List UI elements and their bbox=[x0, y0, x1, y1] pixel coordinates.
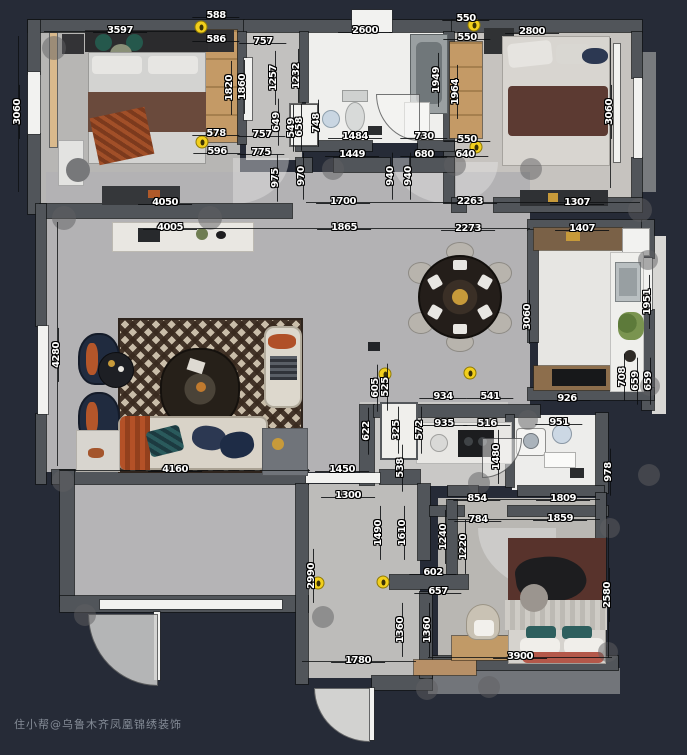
dimension-label: 586 bbox=[206, 35, 225, 45]
island-decor bbox=[196, 228, 208, 240]
bath-mat bbox=[368, 126, 382, 135]
projector bbox=[368, 342, 380, 351]
dimension-label: 4280 bbox=[52, 342, 62, 368]
watermark: 住小帮@乌鲁木齐凤凰锦绣装饰 bbox=[14, 716, 182, 732]
centerpiece bbox=[452, 289, 468, 305]
dimension-label: 1360 bbox=[396, 617, 406, 643]
entry-bench bbox=[414, 660, 476, 675]
wall bbox=[632, 32, 642, 78]
floor-mat-decor bbox=[272, 438, 284, 450]
pouf bbox=[95, 34, 112, 51]
dimension-label: 4005 bbox=[157, 223, 183, 233]
column-blob bbox=[600, 518, 620, 538]
dimension-label: 572 bbox=[415, 420, 425, 439]
dimension-label: 951 bbox=[549, 418, 568, 428]
column-blob bbox=[638, 464, 660, 486]
dimension-label: 1949 bbox=[432, 67, 442, 93]
bed-pillow bbox=[507, 40, 553, 68]
bed-pillow bbox=[92, 56, 142, 74]
dimension-label: 2800 bbox=[519, 27, 545, 37]
column-blob bbox=[312, 606, 334, 628]
wall bbox=[36, 414, 46, 484]
dimension-label: 1300 bbox=[335, 491, 361, 501]
dimension-label: 2263 bbox=[457, 197, 483, 207]
sideboard-decor bbox=[548, 193, 558, 202]
dimension-label: 4160 bbox=[162, 465, 188, 475]
dimension-label: 1860 bbox=[238, 74, 248, 100]
wall bbox=[244, 20, 354, 32]
cooktop bbox=[552, 369, 606, 386]
dimension-label: 1490 bbox=[374, 520, 384, 546]
dimension-label: 975 bbox=[271, 168, 281, 187]
vegetables bbox=[618, 312, 644, 340]
dimension-label: 934 bbox=[433, 392, 452, 402]
light-point-symbol bbox=[195, 21, 208, 34]
plate bbox=[453, 324, 467, 334]
island-decor bbox=[216, 231, 226, 239]
dimension-label: 926 bbox=[557, 394, 576, 404]
dimension-label: 550 bbox=[457, 33, 476, 43]
dimension-label: 525 bbox=[381, 377, 391, 396]
column-blob bbox=[42, 36, 66, 60]
window bbox=[28, 72, 40, 134]
dimension-label: 978 bbox=[604, 462, 614, 481]
coffee-table-decor bbox=[196, 382, 206, 392]
dimension-label: 1450 bbox=[329, 465, 355, 475]
dimension-label: 1780 bbox=[345, 656, 371, 666]
dimension-label: 1700 bbox=[330, 197, 356, 207]
floor-plan: 3597588586757260055055028003060125712321… bbox=[0, 0, 687, 755]
column-blob bbox=[638, 250, 658, 270]
dimension-label: 3900 bbox=[507, 652, 533, 662]
dimension-label: 3060 bbox=[605, 99, 615, 125]
wall bbox=[36, 204, 46, 326]
chair-cushion bbox=[474, 620, 494, 636]
column-blob bbox=[74, 604, 96, 626]
pedestal-sink bbox=[322, 110, 340, 128]
dimension-label: 1964 bbox=[451, 79, 461, 105]
toilet-tank bbox=[342, 90, 368, 102]
dimension-label: 657 bbox=[428, 587, 447, 597]
column-blob bbox=[416, 678, 438, 700]
wall bbox=[28, 134, 40, 214]
dimension-label: 708 bbox=[618, 367, 628, 386]
chaise-blanket bbox=[270, 356, 297, 380]
hall-sink bbox=[430, 434, 448, 452]
dimension-label: 970 bbox=[297, 166, 307, 185]
wall bbox=[390, 20, 454, 32]
window bbox=[100, 600, 282, 609]
light-point-symbol bbox=[464, 367, 477, 380]
kitchen-sink-basin bbox=[619, 268, 637, 296]
dimension-label: 659 bbox=[644, 371, 654, 390]
dimension-label: 940 bbox=[386, 166, 396, 185]
column-blob bbox=[478, 676, 500, 698]
dimension-label: 550 bbox=[457, 135, 476, 145]
dimension-label: 640 bbox=[455, 150, 474, 160]
bath2-stand bbox=[570, 468, 584, 478]
dimension-label: 658 bbox=[295, 117, 305, 136]
dimension-label: 325 bbox=[392, 420, 402, 439]
dimension-label: 1360 bbox=[423, 617, 433, 643]
dimension-label: 1865 bbox=[331, 223, 357, 233]
column-blob bbox=[518, 410, 538, 430]
dimension-label: 4050 bbox=[152, 198, 178, 208]
dimension-label: 1859 bbox=[547, 514, 573, 524]
dimension-label: 1610 bbox=[398, 520, 408, 546]
dimension-label: 680 bbox=[414, 150, 433, 160]
floor-mat bbox=[262, 428, 308, 476]
dimension-label: 578 bbox=[206, 129, 225, 139]
side-table-decor bbox=[118, 366, 124, 372]
wall bbox=[28, 20, 40, 74]
dimension-label: 622 bbox=[362, 421, 372, 440]
dimension-label: 775 bbox=[251, 148, 270, 158]
wall bbox=[452, 20, 642, 32]
dimension-label: 1951 bbox=[643, 289, 653, 315]
dimension-label: 550 bbox=[456, 14, 475, 24]
dimension-label: 1484 bbox=[342, 132, 368, 142]
dimension-label: 596 bbox=[207, 147, 226, 157]
dimension-label: 659 bbox=[631, 371, 641, 390]
washing-machine-door bbox=[523, 433, 539, 449]
bed3-duvet bbox=[505, 600, 607, 630]
column-blob bbox=[322, 158, 344, 180]
bed-blanket bbox=[508, 86, 608, 136]
dimension-label: 784 bbox=[468, 515, 487, 525]
column-blob bbox=[468, 472, 490, 494]
stool-shadow bbox=[520, 584, 548, 612]
dimension-label: 538 bbox=[396, 458, 406, 477]
dimension-label: 516 bbox=[477, 419, 496, 429]
armchair-cushion bbox=[86, 343, 98, 375]
dimension-label: 541 bbox=[480, 392, 499, 402]
column-blob bbox=[520, 158, 542, 180]
dimension-label: 1449 bbox=[339, 150, 365, 160]
shower-tray bbox=[544, 452, 576, 468]
window bbox=[38, 326, 48, 414]
dimension-label: 2580 bbox=[603, 582, 613, 608]
dimension-label: 1820 bbox=[225, 75, 235, 101]
dimension-label: 940 bbox=[404, 166, 414, 185]
chair bbox=[66, 158, 90, 182]
side-table bbox=[98, 352, 134, 388]
dimension-label: 1220 bbox=[459, 534, 469, 560]
dimension-label: 3597 bbox=[107, 26, 133, 36]
column-blob bbox=[198, 206, 222, 230]
toilet-bowl bbox=[345, 102, 365, 132]
dimension-label: 1480 bbox=[492, 444, 502, 470]
kettle bbox=[624, 350, 636, 362]
dimension-label: 1407 bbox=[569, 224, 595, 234]
plate bbox=[453, 260, 467, 270]
dimension-label: 730 bbox=[414, 132, 433, 142]
dimension-label: 757 bbox=[253, 37, 272, 47]
floor-mat-decor bbox=[88, 448, 104, 458]
sofa-throw bbox=[120, 416, 150, 470]
dimension-label: 1809 bbox=[550, 494, 576, 504]
dimension-label: 588 bbox=[206, 11, 225, 21]
dimension-label: 1257 bbox=[269, 65, 279, 91]
bed-pillow-navy bbox=[582, 48, 608, 64]
dimension-label: 2990 bbox=[307, 563, 317, 589]
dimension-label: 1232 bbox=[292, 63, 302, 89]
bed-pillow bbox=[148, 56, 198, 74]
dimension-label: 2273 bbox=[455, 224, 481, 234]
dimension-label: 3060 bbox=[13, 99, 23, 125]
dimension-label: 3060 bbox=[523, 304, 533, 330]
column-blob bbox=[52, 206, 76, 230]
dimension-label: 854 bbox=[467, 494, 486, 504]
column-blob bbox=[52, 470, 74, 492]
window bbox=[634, 78, 642, 158]
dimension-label: 1240 bbox=[439, 524, 449, 550]
light-point-symbol bbox=[377, 576, 390, 589]
dimension-label: 602 bbox=[423, 568, 442, 578]
dimension-label: 748 bbox=[312, 113, 322, 132]
chaise-pillow bbox=[268, 334, 296, 349]
dimension-label: 2600 bbox=[352, 26, 378, 36]
dimension-label: 1307 bbox=[564, 198, 590, 208]
wall bbox=[418, 484, 430, 560]
side-table-decor bbox=[108, 360, 115, 367]
dimension-label: 935 bbox=[434, 419, 453, 429]
hall-stove-burner bbox=[464, 437, 473, 446]
dimension-label: 649 bbox=[272, 112, 282, 131]
dimension-label: 757 bbox=[252, 130, 271, 140]
